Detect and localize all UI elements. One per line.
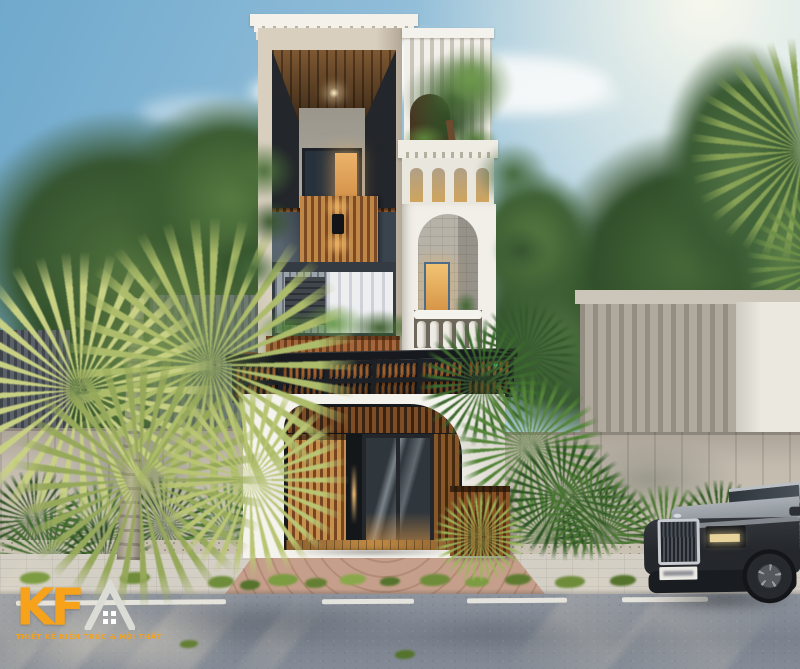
palm-frond	[540, 462, 640, 562]
lane-marking	[467, 598, 567, 604]
balustrade-rail	[414, 310, 482, 319]
classical-wing	[402, 28, 496, 358]
sidelight-glow	[352, 464, 356, 524]
side-mirror	[789, 507, 800, 516]
car-grille	[657, 518, 700, 565]
wall-sconce	[332, 214, 344, 234]
bright-palm-sprout	[430, 492, 530, 582]
headlight-drl	[710, 534, 740, 543]
ceiling-downlight	[328, 88, 340, 98]
overhanging-leaves	[232, 142, 296, 200]
arcade-slot	[454, 168, 467, 202]
cornice	[250, 14, 418, 26]
arcade-slot	[432, 168, 445, 202]
sconce-glow-down	[324, 232, 352, 256]
canopy-slat-panel	[376, 363, 418, 377]
architectural-render: KF THIẾT KẾ KIẾN TRÚC & NỘI THẤT	[0, 0, 800, 669]
overhanging-leaves	[226, 248, 280, 290]
plate-text-blur	[663, 571, 693, 577]
cloud	[520, 82, 620, 110]
logo-house-a-icon	[83, 580, 135, 630]
overhanging-leaves	[492, 226, 550, 274]
overhanging-leaves	[476, 142, 550, 206]
logo-tagline: THIẾT KẾ KIẾN TRÚC & NỘI THẤT	[16, 633, 206, 641]
arcade-slot	[410, 168, 423, 202]
glass-entry-door[interactable]	[362, 434, 434, 546]
parapet-cap	[402, 28, 494, 38]
logo-letters: KF	[16, 585, 81, 631]
baluster	[417, 321, 426, 349]
car-headlight	[706, 526, 746, 549]
kfa-logo: KF THIẾT KẾ KIẾN TRÚC & NỘI THẤT	[16, 580, 206, 662]
overhanging-leaves	[246, 200, 294, 244]
lane-marking	[322, 599, 414, 605]
rooftop-tree-highlight	[446, 56, 496, 102]
door-floor-glow	[366, 512, 430, 542]
palm-frond-yellow	[150, 380, 350, 580]
luxury-car[interactable]	[643, 483, 800, 620]
license-plate	[659, 566, 697, 580]
